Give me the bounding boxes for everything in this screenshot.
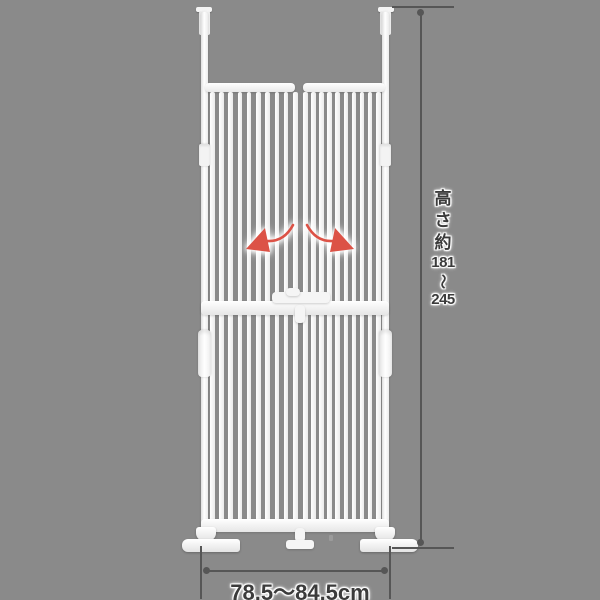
height-label-char: さ <box>435 210 452 232</box>
pole-sleeve-right <box>379 330 392 377</box>
width-dimension-dot-left <box>203 567 210 574</box>
height-dimension-dot-bottom <box>417 539 424 546</box>
pole-clamp-left <box>199 144 210 166</box>
height-label-number: 181 <box>431 254 455 272</box>
top-rail-left-door <box>205 83 295 92</box>
swing-arrow-left-icon <box>240 213 300 263</box>
pole-clamp-right <box>380 144 391 166</box>
height-label-char: 約 <box>435 232 452 254</box>
floor-stopper-base <box>286 540 314 549</box>
swing-arrow-right-icon <box>300 213 360 263</box>
height-label-number: 245 <box>431 291 455 309</box>
latch-tab <box>295 305 305 323</box>
gate-product-photo: 高 さ 約 181 〜 245 78.5〜84.5cm <box>0 0 600 600</box>
height-dimension-label: 高 さ 約 181 〜 245 <box>429 188 457 309</box>
width-dimension-label: 78.5〜84.5cm <box>200 575 400 600</box>
height-dimension-line <box>420 13 422 542</box>
foot-plate-left <box>182 539 240 552</box>
height-label-char: 高 <box>435 188 452 210</box>
height-extension-line-top <box>392 6 454 8</box>
small-sticker <box>329 535 333 541</box>
height-label-tilde: 〜 <box>435 272 450 291</box>
height-dimension-dot-top <box>417 9 424 16</box>
pole-sleeve-left <box>198 330 211 377</box>
width-dimension-line <box>207 570 385 572</box>
top-rail-right-door <box>303 83 385 92</box>
height-extension-line-bottom <box>392 547 454 549</box>
latch-slider <box>272 292 330 303</box>
latch-knob <box>286 288 300 296</box>
width-dimension-dot-right <box>381 567 388 574</box>
